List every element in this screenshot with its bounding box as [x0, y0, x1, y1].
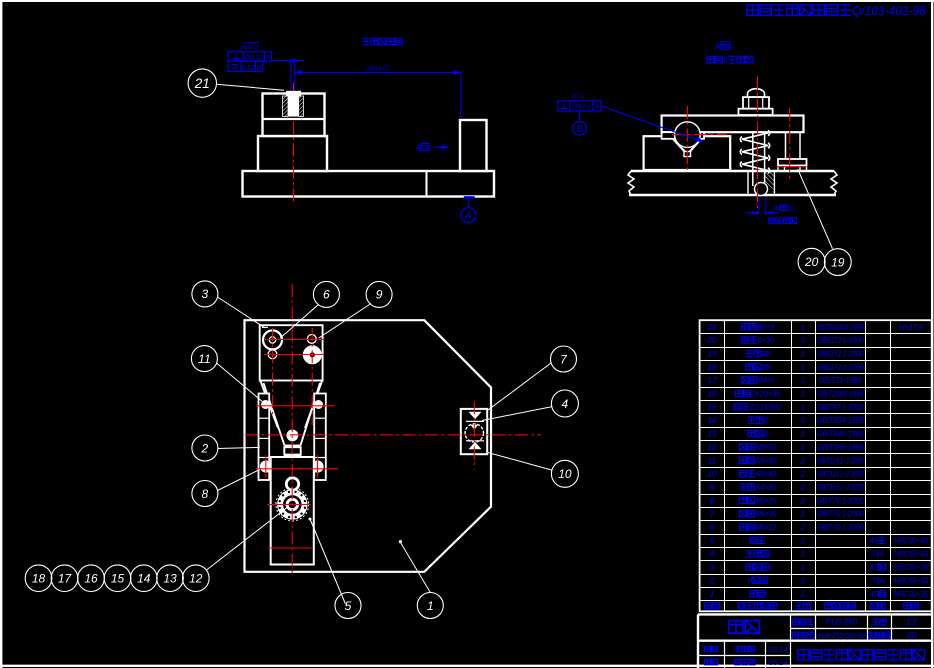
svg-text:GB/T2089-1994: GB/T2089-1994: [817, 390, 864, 399]
svg-text:5: 5: [345, 599, 352, 613]
svg-text:GB/T119.1~1-2000: GB/T119.1~1-2000: [817, 456, 864, 465]
svg-text:1: 1: [801, 429, 806, 439]
svg-text:B: B: [257, 64, 262, 71]
svg-text:2: 2: [709, 575, 715, 585]
svg-text:45: 45: [870, 536, 879, 545]
svg-text:T8A: T8A: [872, 576, 885, 585]
svg-text:3: 3: [202, 287, 209, 301]
svg-text:GB/T70.1-2000: GB/T70.1-2000: [817, 510, 864, 519]
svg-text:GB6172.1-2000: GB6172.1-2000: [817, 350, 864, 359]
svg-text:HRC30~40: HRC30~40: [894, 536, 929, 545]
svg-text:2: 2: [800, 495, 806, 505]
svg-text:2: 2: [800, 469, 806, 479]
svg-text:21: 21: [194, 76, 210, 91]
svg-text:45: 45: [870, 590, 879, 599]
svg-text:19: 19: [707, 349, 717, 359]
svg-text:12: 12: [189, 572, 203, 586]
svg-text:M8×50: M8×50: [755, 443, 776, 452]
svg-text:A4×20: A4×20: [754, 483, 776, 492]
svg-text:4: 4: [562, 397, 569, 411]
svg-text:19: 19: [831, 255, 845, 269]
svg-text:16: 16: [707, 389, 717, 399]
svg-text:M6×35: M6×35: [755, 510, 776, 519]
svg-text:GB/T854-1988: GB/T854-1988: [817, 416, 864, 425]
svg-text:15: 15: [111, 572, 125, 586]
svg-text:1: 1: [801, 402, 806, 412]
svg-text:20: 20: [706, 335, 717, 345]
svg-text:GB6172.1-2000: GB6172.1-2000: [817, 336, 864, 345]
svg-text:2: 2: [800, 522, 806, 532]
svg-text:2: 2: [201, 441, 209, 455]
svg-text:10-140HV: 10-140HV: [750, 403, 782, 412]
svg-text:A: A: [265, 54, 271, 61]
svg-text:15: 15: [707, 402, 717, 412]
svg-text:1: 1: [801, 349, 806, 359]
svg-text:0.03: 0.03: [242, 64, 255, 71]
svg-text:1: 1: [801, 589, 806, 599]
svg-text:Ø0.02: Ø0.02: [244, 54, 264, 61]
svg-text:05.14: 05.14: [769, 645, 788, 654]
svg-text:4: 4: [710, 549, 715, 559]
svg-text:1: 1: [801, 322, 806, 332]
svg-text:10: 10: [788, 206, 795, 213]
svg-text:17: 17: [58, 572, 73, 586]
svg-text:1: 1: [710, 589, 715, 599]
svg-text:1: 1: [801, 549, 806, 559]
svg-text:PLB-250-000-00: PLB-250-000-00: [818, 631, 867, 640]
svg-text:M6×25: M6×25: [755, 496, 776, 505]
svg-text:18: 18: [32, 572, 46, 586]
svg-text:B: B: [576, 124, 583, 135]
svg-text:1: 1: [801, 442, 806, 452]
svg-text:HRC30~35: HRC30~35: [894, 563, 929, 572]
svg-text:GB/T97.1-2002: GB/T97.1-2002: [817, 403, 864, 412]
svg-text:M8×0.75: M8×0.75: [241, 45, 260, 51]
svg-text:6: 6: [710, 522, 715, 532]
svg-text:17: 17: [707, 375, 717, 385]
svg-text:1: 1: [801, 562, 806, 572]
svg-text:A: A: [714, 42, 720, 53]
svg-text:HRC30~35: HRC30~35: [894, 590, 929, 599]
svg-text:M8: M8: [762, 363, 771, 372]
svg-text:V: V: [747, 576, 752, 585]
svg-text:GB/T70.1-2000: GB/T70.1-2000: [817, 496, 864, 505]
svg-text:GB/T119.1~2-2000: GB/T119.1~2-2000: [817, 483, 864, 492]
svg-text:2: 2: [800, 455, 806, 465]
svg-text:10: 10: [707, 469, 717, 479]
svg-text:9: 9: [376, 288, 383, 302]
svg-text:7: 7: [710, 509, 715, 519]
svg-text:Q/103-402-98: Q/103-402-98: [852, 3, 926, 18]
svg-text:GB/T70.1-2000: GB/T70.1-2000: [817, 523, 864, 532]
svg-text:1: 1: [801, 575, 806, 585]
svg-text:1: 1: [801, 375, 806, 385]
svg-text:12: 12: [707, 442, 717, 452]
svg-text:M8: M8: [762, 350, 771, 359]
svg-text:6×30: 6×30: [757, 336, 774, 345]
svg-text:GB/T849-1988: GB/T849-1988: [817, 430, 864, 439]
svg-text:1: 1: [801, 389, 806, 399]
svg-text:2: 2: [800, 482, 806, 492]
svg-text:11: 11: [708, 455, 717, 465]
svg-text:T8A: T8A: [872, 550, 885, 559]
svg-text:1:1: 1:1: [906, 618, 917, 627]
svg-text:8: 8: [710, 495, 715, 505]
svg-text:HRC55~60: HRC55~60: [894, 550, 929, 559]
svg-text:A6×40: A6×40: [754, 470, 776, 479]
svg-text:1: 1: [801, 535, 806, 545]
svg-text:10: 10: [558, 467, 572, 481]
svg-text:1: 1: [801, 509, 806, 519]
svg-text:M4: M4: [773, 206, 780, 213]
svg-text:B2×9: B2×9: [757, 323, 774, 332]
svg-text:3: 3: [710, 562, 715, 572]
svg-text:9: 9: [710, 482, 715, 492]
svg-text:45: 45: [870, 563, 879, 572]
svg-text:H=17.5: H=17.5: [899, 323, 923, 332]
svg-text:14: 14: [707, 415, 717, 425]
svg-text:20: 20: [804, 255, 819, 269]
svg-text:GB/T898-1988: GB/T898-1988: [817, 443, 864, 452]
svg-text:11: 11: [198, 352, 210, 366]
svg-text:13: 13: [163, 572, 177, 586]
svg-text:A6×30: A6×30: [754, 456, 776, 465]
svg-text:M6×12: M6×12: [755, 523, 776, 532]
svg-text:1: 1: [801, 335, 806, 345]
svg-text:1: 1: [427, 599, 434, 613]
svg-text:M4×6: M4×6: [757, 376, 774, 385]
svg-text:Ø0.02: Ø0.02: [571, 104, 591, 111]
svg-text:A: A: [594, 104, 600, 111]
svg-text:200±0.03: 200±0.03: [365, 66, 390, 72]
svg-text:Ø7.5: Ø7.5: [571, 95, 585, 101]
svg-text:8: 8: [202, 487, 209, 501]
svg-text:A: A: [464, 211, 472, 222]
svg-text:8: 8: [764, 430, 769, 439]
svg-text:GB/T71-1985: GB/T71-1985: [819, 376, 862, 385]
svg-text:05.14: 05.14: [769, 658, 788, 667]
svg-text:A: A: [415, 142, 421, 152]
svg-text:13: 13: [707, 429, 717, 439]
svg-text:2×20×36: 2×20×36: [750, 390, 781, 399]
svg-text:14: 14: [137, 572, 151, 586]
svg-text:5: 5: [710, 535, 715, 545]
svg-text:5: 5: [723, 55, 728, 65]
svg-text:PLB-250: PLB-250: [826, 618, 858, 627]
svg-text:16: 16: [84, 572, 98, 586]
svg-text:8: 8: [764, 416, 769, 425]
svg-text:HRC55~60: HRC55~60: [894, 576, 929, 585]
svg-text:1: 1: [801, 362, 806, 372]
svg-text:18: 18: [707, 362, 717, 372]
svg-text:21: 21: [706, 322, 717, 332]
svg-text:JB/T8045.6-1999: JB/T8045.6-1999: [816, 323, 864, 332]
svg-text:6: 6: [323, 288, 330, 302]
svg-text:GB6172.1-2000: GB6172.1-2000: [817, 363, 864, 372]
svg-text:60: 60: [907, 631, 916, 640]
svg-text:1: 1: [801, 415, 806, 425]
svg-text:GB/T119.1~2-2000: GB/T119.1~2-2000: [817, 470, 864, 479]
